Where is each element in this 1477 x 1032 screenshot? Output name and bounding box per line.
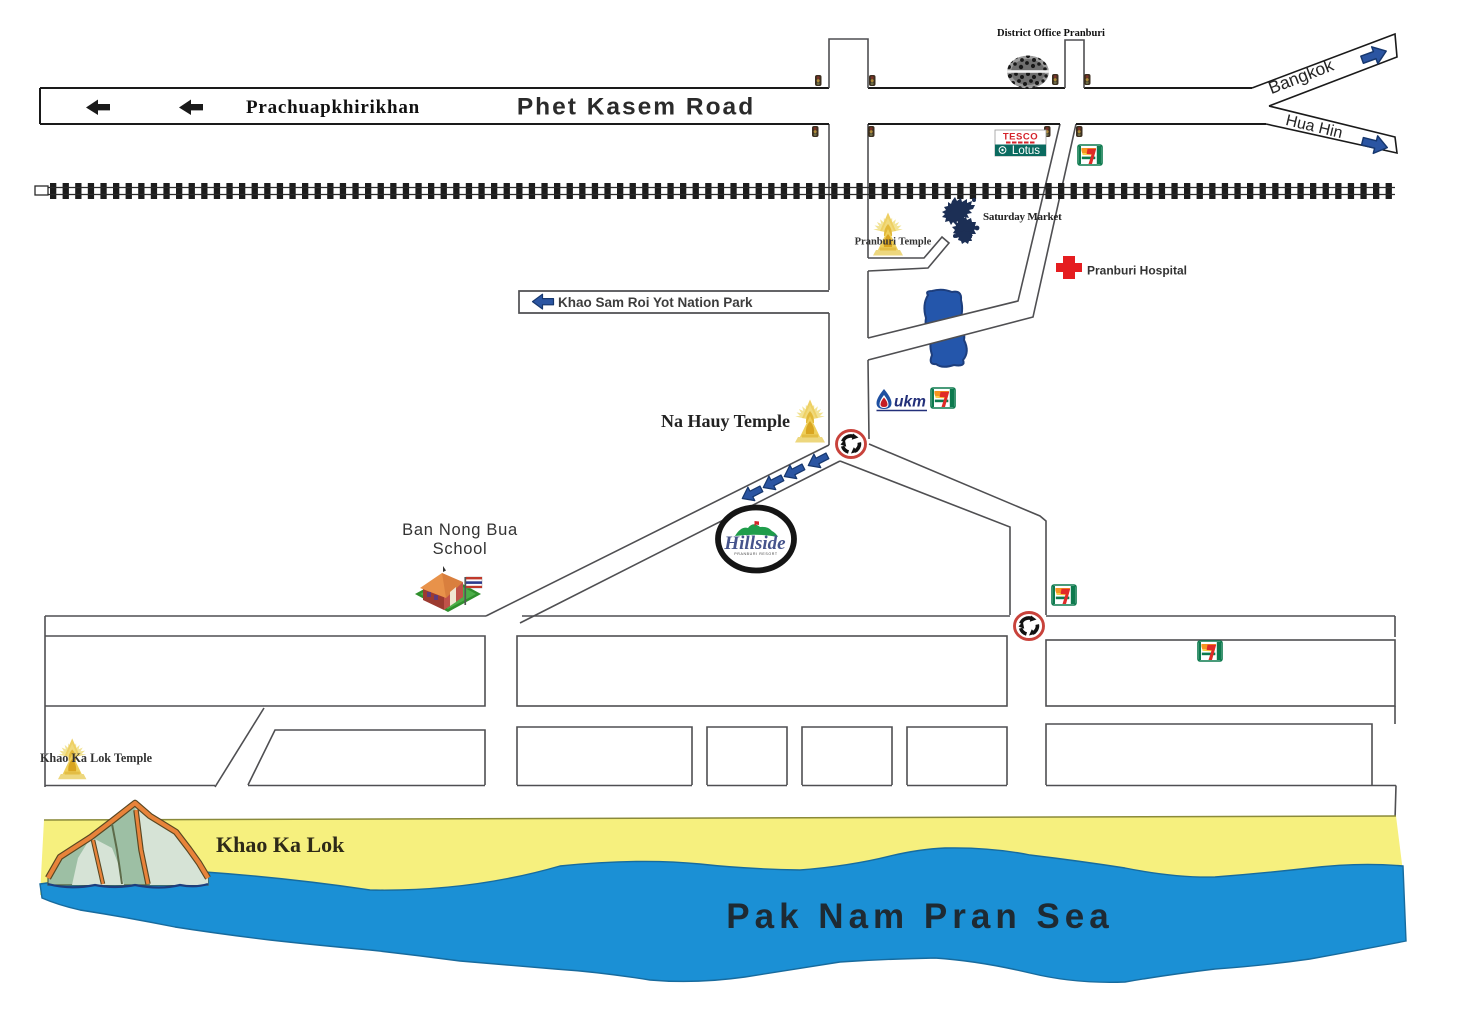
- svg-text:Khao Sam Roi Yot Nation Park: Khao Sam Roi Yot Nation Park: [558, 295, 753, 310]
- svg-text:Na Hauy Temple: Na Hauy Temple: [661, 411, 790, 431]
- svg-text:Ban Nong Bua: Ban Nong Bua: [402, 521, 518, 539]
- svg-text:Phet Kasem Road: Phet Kasem Road: [517, 94, 755, 121]
- svg-text:TESCO: TESCO: [1003, 132, 1038, 143]
- svg-text:Lotus: Lotus: [1012, 145, 1040, 157]
- svg-text:Pak Nam Pran Sea: Pak Nam Pran Sea: [726, 897, 1113, 936]
- svg-text:Pranburi Hospital: Pranburi Hospital: [1087, 264, 1187, 278]
- svg-text:Saturday Market: Saturday Market: [983, 211, 1062, 223]
- svg-text:Khao Ka Lok: Khao Ka Lok: [216, 832, 345, 857]
- svg-text:District Office Pranburi: District Office Pranburi: [997, 28, 1105, 39]
- svg-text:ukm: ukm: [894, 394, 926, 411]
- svg-text:Khao Ka Lok Temple: Khao Ka Lok Temple: [40, 751, 153, 765]
- svg-text:Pranburi Temple: Pranburi Temple: [855, 237, 932, 248]
- svg-text:School: School: [433, 540, 488, 558]
- svg-text:Hillside: Hillside: [723, 533, 786, 554]
- svg-text:Prachuapkhirikhan: Prachuapkhirikhan: [246, 97, 420, 118]
- svg-text:PRANBURI RESORT: PRANBURI RESORT: [734, 552, 778, 556]
